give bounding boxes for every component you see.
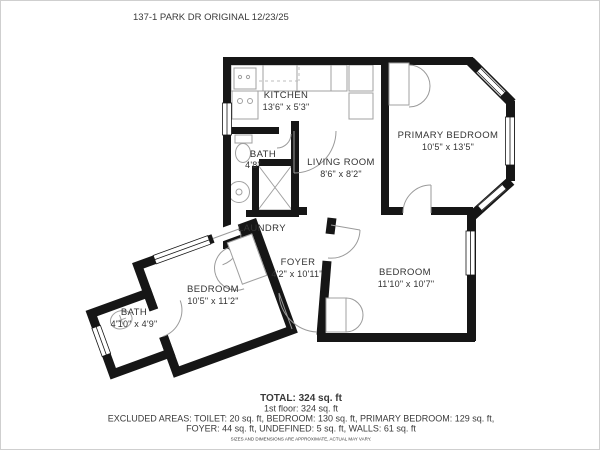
plan-title: 137-1 PARK DR ORIGINAL 12/23/25 (133, 12, 289, 23)
bedroom-left-dims: 10'5" x 11'2" (187, 296, 238, 306)
bedroom-right-dims: 11'10" x 10'7" (378, 279, 435, 289)
floor-plan-page: 137-1 PARK DR ORIGINAL 12/23/25 KITCHEN … (0, 0, 600, 450)
summary-block: TOTAL: 324 sq. ft 1st floor: 324 sq. ft … (108, 393, 494, 442)
kitchen-label: KITCHEN (264, 90, 309, 101)
disclaimer: SIZES AND DIMENSIONS ARE APPROXIMATE, AC… (231, 437, 372, 442)
bedroom-left-label: BEDROOM (187, 284, 239, 295)
bath-upper-dims: 4'8" (245, 160, 261, 170)
rotated-wing (75, 217, 292, 394)
excluded-areas-1: EXCLUDED AREAS: TOILET: 20 sq. ft, BEDRO… (108, 414, 494, 424)
closet-primary (389, 63, 409, 105)
bath-upper-label: BATH (250, 149, 276, 160)
refrigerator (349, 65, 373, 91)
closet-bedroom-right (326, 298, 346, 332)
stove (232, 91, 258, 119)
toilet (235, 135, 252, 143)
living-room-dims: 8'6" x 8'2" (320, 169, 362, 179)
living-room-label: LIVING ROOM (307, 157, 375, 168)
primary-bedroom-label: PRIMARY BEDROOM (398, 130, 499, 141)
floor-area: 1st floor: 324 sq. ft (264, 404, 339, 414)
washer (229, 182, 250, 203)
kitchen-dims: 13'6" x 5'3" (263, 102, 310, 112)
foyer-label: FOYER (281, 257, 316, 268)
laundry-label: LAUNDRY (238, 223, 286, 234)
bath-lower-dims: 4'10" x 4'9" (111, 319, 158, 329)
total-area: TOTAL: 324 sq. ft (260, 393, 343, 404)
kitchen-sink (234, 68, 256, 89)
bedroom-right-label: BEDROOM (379, 267, 431, 278)
excluded-areas-2: FOYER: 44 sq. ft, UNDEFINED: 5 sq. ft, W… (186, 424, 416, 434)
foyer-dims: 4'2" x 10'11" (271, 269, 322, 279)
floor-plan-canvas: 137-1 PARK DR ORIGINAL 12/23/25 KITCHEN … (1, 1, 600, 450)
primary-bedroom-dims: 10'5" x 13'5" (422, 142, 474, 152)
fixtures-layer (229, 65, 374, 210)
kitchen-cabinet (349, 93, 373, 119)
bath-lower-label: BATH (121, 307, 147, 318)
